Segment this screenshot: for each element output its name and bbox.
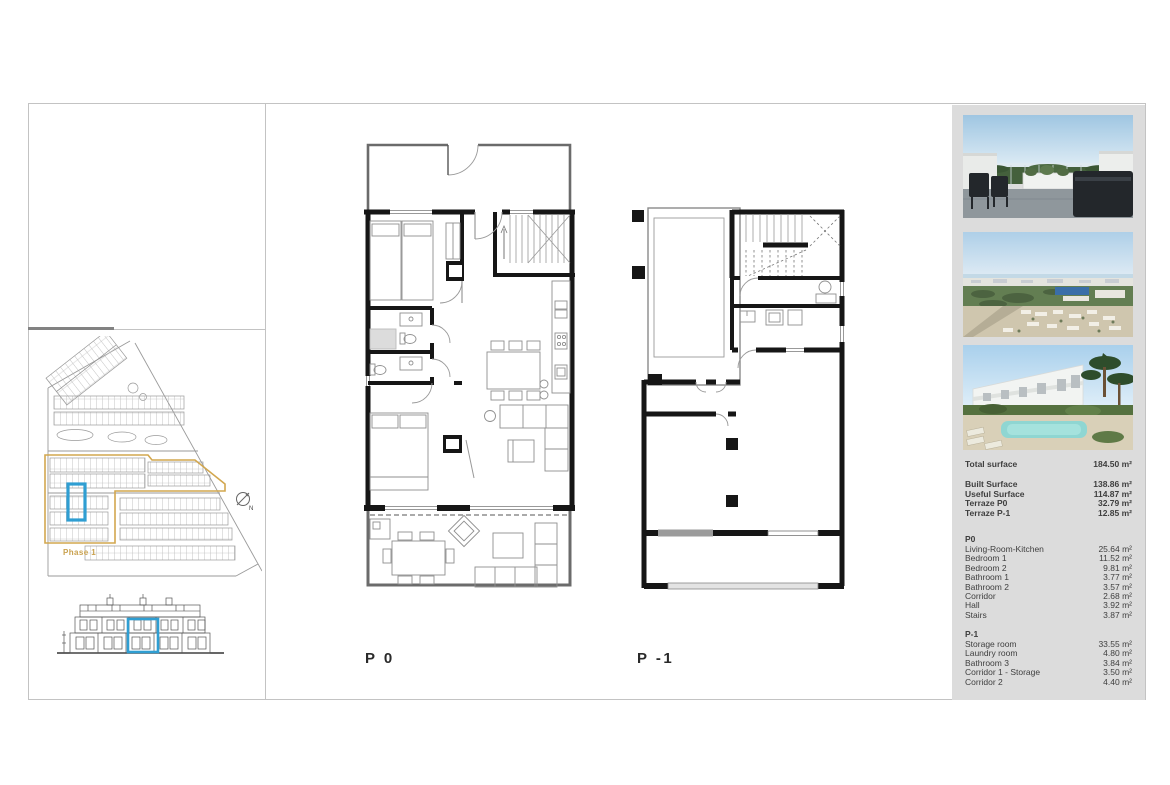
row-label: Corridor 2 xyxy=(965,678,1003,687)
p0-bottom-wall xyxy=(364,507,575,510)
compass-north-label: N xyxy=(249,506,253,512)
p1-stairs xyxy=(746,214,840,276)
site-cluster-north xyxy=(46,336,127,405)
p0-entry-door xyxy=(448,145,478,175)
p0-entrance-patio xyxy=(368,145,570,210)
photo-aerial-render xyxy=(963,232,1133,337)
row-value: 184.50 m² xyxy=(1093,460,1132,469)
p0-bedroom1-furniture xyxy=(370,221,460,300)
photo-pool-render xyxy=(963,345,1133,450)
row-label: Terraze P-1 xyxy=(965,509,1010,518)
table-row: Corridor 2 4.40 m² xyxy=(965,678,1132,687)
row-label: Total surface xyxy=(965,460,1017,469)
plan-label-p0: P 0 xyxy=(365,650,395,667)
p0-terrace xyxy=(368,511,570,587)
section-mark xyxy=(28,327,114,330)
p0-outer-walls xyxy=(364,210,575,509)
row-value: 3.87 m² xyxy=(1103,611,1132,620)
photo-terrace-render xyxy=(963,115,1133,218)
table-row: Total surface 184.50 m² xyxy=(965,460,1132,469)
floor-plan-p1 xyxy=(628,198,846,594)
plan-label-p1: P -1 xyxy=(637,650,674,667)
sidebar: Total surface 184.50 m² Built Surface 13… xyxy=(952,105,1145,700)
p0-bathroom2-fixtures xyxy=(370,357,422,375)
p0-windows xyxy=(367,211,534,387)
row-value: 12.85 m² xyxy=(1098,509,1132,518)
site-unit-rows xyxy=(50,396,235,560)
p0-bedroom2-furniture xyxy=(370,413,428,490)
site-plan: N xyxy=(30,336,262,598)
p1-storage xyxy=(644,438,844,537)
p0-bathroom1-fixtures xyxy=(370,313,422,349)
p1-terrace xyxy=(644,583,844,589)
left-panel-divider xyxy=(265,103,266,700)
p0-kitchen xyxy=(552,281,570,393)
compass-icon: N xyxy=(237,493,254,513)
row-value: 4.40 m² xyxy=(1103,678,1132,687)
p0-dining-furniture xyxy=(487,341,548,400)
table-row: Terraze P-1 12.85 m² xyxy=(965,509,1132,518)
floor-plan-p0 xyxy=(358,133,580,595)
row-label: Stairs xyxy=(965,611,987,620)
elevation-drawing xyxy=(52,593,230,665)
p0-stairs xyxy=(501,215,570,263)
p0-interior-walls xyxy=(368,212,575,385)
p1-hall-walls xyxy=(644,414,736,426)
brochure-page: { "document": { "phase_label": "Phase 1"… xyxy=(0,0,1170,785)
p1-lightwell xyxy=(632,208,740,385)
phase-label: Phase 1 xyxy=(63,548,96,557)
table-row: Stairs 3.87 m² xyxy=(965,611,1132,620)
surface-table: Total surface 184.50 m² Built Surface 13… xyxy=(965,460,1132,687)
elevation-unit-highlight xyxy=(128,619,158,652)
p1-laundry xyxy=(732,310,844,368)
p0-living-furniture xyxy=(485,405,569,471)
p1-patio-wall xyxy=(644,382,740,392)
